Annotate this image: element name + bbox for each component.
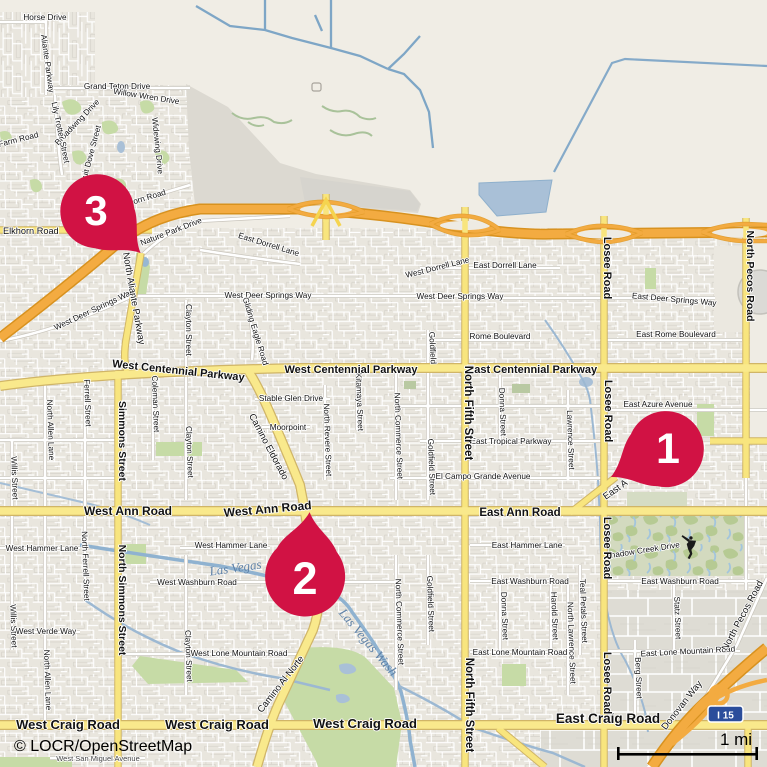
svg-text:North Fifth Street: North Fifth Street: [462, 366, 474, 461]
svg-text:East Hammer Lane: East Hammer Lane: [492, 541, 563, 550]
svg-text:North Simmons Street: North Simmons Street: [116, 545, 128, 656]
svg-text:Losee Road: Losee Road: [601, 237, 613, 299]
svg-text:East Washburn Road: East Washburn Road: [491, 577, 569, 586]
svg-text:West Ann Road: West Ann Road: [84, 504, 172, 518]
svg-text:Losee Road: Losee Road: [601, 517, 613, 579]
svg-text:East Lone Mountain Road: East Lone Mountain Road: [473, 648, 568, 657]
svg-text:Losee Road: Losee Road: [601, 652, 613, 714]
svg-text:West Hammer Lane: West Hammer Lane: [195, 541, 268, 550]
svg-text:Moorpoint: Moorpoint: [270, 423, 307, 432]
svg-text:West Hammer Lane: West Hammer Lane: [6, 544, 79, 553]
svg-text:West Lone Mountain Road: West Lone Mountain Road: [191, 649, 288, 658]
svg-text:West Craig Road: West Craig Road: [313, 716, 417, 731]
svg-text:Statz Street: Statz Street: [672, 596, 683, 640]
svg-text:Goldfield: Goldfield: [427, 331, 438, 364]
svg-text:North Fifth Street: North Fifth Street: [463, 658, 475, 753]
svg-text:Stable Glen Drive: Stable Glen Drive: [259, 394, 324, 403]
svg-text:El Campo Grande Avenue: El Campo Grande Avenue: [436, 472, 531, 481]
svg-text:1 mi: 1 mi: [720, 730, 752, 749]
svg-text:East Centennial Parkway: East Centennial Parkway: [467, 364, 598, 376]
svg-text:I 15: I 15: [717, 711, 734, 722]
svg-text:2: 2: [292, 553, 317, 604]
svg-text:West Washburn Road: West Washburn Road: [157, 578, 237, 587]
svg-text:West Craig Road: West Craig Road: [165, 717, 269, 732]
svg-text:© LOCR/OpenStreetMap: © LOCR/OpenStreetMap: [14, 738, 192, 755]
svg-text:West Deer Springs Way: West Deer Springs Way: [225, 291, 313, 300]
svg-text:Ferrell Street: Ferrell Street: [82, 379, 93, 427]
svg-text:3: 3: [84, 187, 107, 234]
svg-text:East Tropical Parkway: East Tropical Parkway: [471, 437, 553, 446]
svg-text:West San Miguel Avenue: West San Miguel Avenue: [56, 754, 140, 763]
svg-text:Berg Street: Berg Street: [633, 657, 643, 699]
svg-text:Losee Road: Losee Road: [602, 380, 614, 442]
svg-text:Clayton Street: Clayton Street: [184, 426, 195, 479]
svg-text:West Deer Springs Way: West Deer Springs Way: [417, 292, 505, 301]
svg-text:Simmons Street: Simmons Street: [116, 401, 128, 481]
svg-text:West Craig Road: West Craig Road: [16, 717, 120, 732]
svg-text:East Ann Road: East Ann Road: [479, 507, 560, 519]
svg-text:North Pecos Road: North Pecos Road: [744, 230, 756, 321]
svg-text:West Centennial Parkway: West Centennial Parkway: [284, 364, 418, 376]
svg-text:East Azure Avenue: East Azure Avenue: [623, 400, 692, 409]
svg-text:Harold Street: Harold Street: [549, 592, 560, 641]
svg-text:Rome Boulevard: Rome Boulevard: [470, 332, 531, 341]
svg-text:East Rome Boulevard: East Rome Boulevard: [636, 330, 716, 339]
svg-text:Donna Street: Donna Street: [499, 592, 510, 641]
svg-text:Willis Street: Willis Street: [9, 456, 20, 500]
svg-text:East Washburn Road: East Washburn Road: [641, 577, 719, 586]
svg-text:Horse Drive: Horse Drive: [23, 13, 67, 22]
svg-text:Donna Street: Donna Street: [497, 388, 508, 437]
svg-text:East Dorrell Lane: East Dorrell Lane: [473, 261, 537, 270]
svg-text:1: 1: [656, 425, 680, 473]
svg-text:Elkhorn Road: Elkhorn Road: [3, 226, 59, 236]
svg-text:West Verde Way: West Verde Way: [16, 627, 77, 636]
svg-text:Clayton Street: Clayton Street: [184, 304, 193, 357]
